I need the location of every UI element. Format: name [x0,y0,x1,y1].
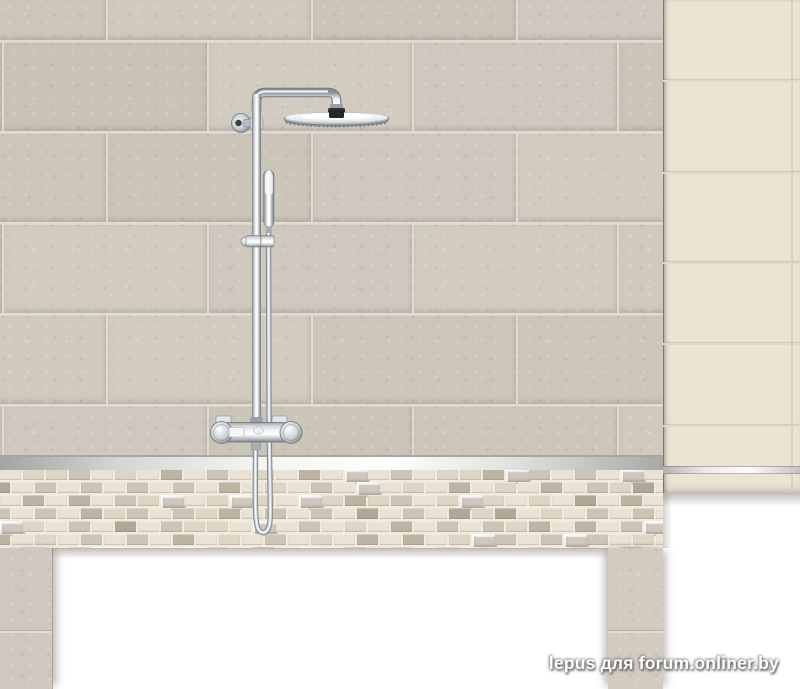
mosaic-tile [541,482,562,493]
wall-tile [0,42,2,131]
mosaic-tile [35,508,56,519]
tile-grout-line [608,631,663,633]
mosaic-tile [115,469,136,480]
mosaic-tile [552,469,573,480]
mosaic-tile [138,521,159,532]
mosaic-tile [115,521,136,532]
mosaic-tile [460,469,481,480]
mosaic-tile [633,508,654,519]
wall-tile [0,315,106,404]
mosaic-tile [138,495,159,506]
mosaic-tile [656,534,663,545]
mosaic-tile [610,534,631,545]
wall-tile [4,406,207,458]
mosaic-tile [173,508,194,519]
accent-panel-right [663,0,800,493]
mosaic-tile [656,482,663,493]
mosaic-tile [575,469,596,480]
mosaic-tile [92,521,113,532]
mosaic-tile [150,508,171,519]
wall-tile [108,0,311,40]
wall-tile [414,224,617,313]
mosaic-tile [598,469,619,480]
mosaic-tile [644,469,663,480]
mosaic-tile [104,482,125,493]
accent-panel-grout-line [663,262,800,264]
wall-tile [414,42,617,131]
mosaic-tile [483,495,504,506]
wall-tile [0,133,106,222]
right-cutout-side-shadow [663,494,672,548]
mosaic-tile [127,482,148,493]
mosaic-tile [46,521,67,532]
mosaic-tile [115,495,136,506]
mosaic-tile [69,495,90,506]
mosaic-tile [173,482,194,493]
metal-trim-strip-right [663,466,800,474]
accent-panel-grout-vertical [791,0,793,493]
mosaic-tile [426,482,447,493]
bathroom-scene: lepus для forum.onliner.by [0,0,800,689]
mosaic-tile [23,521,44,532]
mosaic-tile [81,534,102,545]
hand-shower-icon [264,170,275,233]
wall-tile [518,0,663,40]
mosaic-tile [541,508,562,519]
wall-tile [518,315,663,404]
mosaic-tile [564,534,589,548]
mosaic-tile [483,469,504,480]
mosaic-tile [610,508,631,519]
mosaic-tile [23,495,44,506]
accent-panel-grout-line [663,425,800,427]
mosaic-tile [58,482,79,493]
mosaic-tile [12,508,33,519]
mosaic-tile [621,521,642,532]
wall-tile [619,42,663,131]
mosaic-tile [506,495,527,506]
slider-clamp-icon [241,236,274,248]
mosaic-tile [552,495,573,506]
mosaic-tile [104,508,125,519]
wall-tile [0,0,106,40]
accent-panel-grout-line [663,172,800,174]
mosaic-tile [564,482,585,493]
wall-tile [0,224,2,313]
mosaic-tile [437,469,458,480]
mosaic-tile [58,534,79,545]
shower-system [200,78,420,548]
thermostat-valve-icon [211,416,303,450]
wall-tile [619,406,663,458]
mosaic-tile [518,534,539,545]
mosaic-tile [529,469,550,480]
mosaic-tile [12,534,33,545]
mosaic-tile [495,482,516,493]
wall-tile [313,0,516,40]
mosaic-tile [644,495,663,506]
mosaic-tile [12,482,33,493]
mosaic-tile [69,521,90,532]
mosaic-tile [449,508,470,519]
mosaic-tile [529,495,550,506]
mosaic-tile [472,534,497,548]
mosaic-tile [449,534,470,545]
mosaic-tile [0,469,21,480]
mosaic-tile [127,508,148,519]
mosaic-tile [472,508,493,519]
mosaic-tile [127,534,148,545]
mosaic-tile [633,534,654,545]
mosaic-tile [575,521,596,532]
mosaic-tile [426,534,447,545]
mosaic-tile [46,495,67,506]
mosaic-tile [587,508,608,519]
mosaic-tile [472,482,493,493]
mosaic-tile [35,482,56,493]
mosaic-tile [150,534,171,545]
mosaic-tile [518,508,539,519]
mosaic-tile [161,521,182,532]
mosaic-tile [0,495,21,506]
mosaic-tile [69,469,90,480]
mosaic-tile [138,469,159,480]
wall-tile [4,224,207,313]
accent-panel-grout-line [663,80,800,82]
mosaic-tile [552,521,573,532]
mosaic-tile [0,534,10,545]
mosaic-tile [104,534,125,545]
wall-tile [0,406,2,458]
accent-panel-grout-line [663,343,800,345]
mosaic-tile [587,534,608,545]
mosaic-tile [529,521,550,532]
mosaic-tile [0,508,10,519]
wall-tile [619,224,663,313]
mosaic-tile [58,508,79,519]
mosaic-tile [437,495,458,506]
mosaic-tile [610,482,631,493]
wall-tile [414,406,617,458]
mosaic-tile [35,534,56,545]
mosaic-tile [598,521,619,532]
shower-arm-icon [257,92,337,113]
mosaic-tile [173,534,194,545]
right-cutout-shadow [663,493,800,506]
mosaic-tile [92,469,113,480]
mosaic-tile [0,482,10,493]
mosaic-tile [575,495,596,506]
mosaic-tile [506,521,527,532]
mosaic-tile [23,469,44,480]
mosaic-tile [437,521,458,532]
mosaic-tile [564,508,585,519]
watermark: lepus для forum.onliner.by [549,653,779,674]
mosaic-tile [483,521,504,532]
mosaic-tile [495,508,516,519]
rain-shower-head-icon [284,104,389,127]
mosaic-tile [495,534,516,545]
mosaic-tile [518,482,539,493]
wall-tile [518,133,663,222]
tile-column-left [0,548,53,689]
mosaic-tile [587,482,608,493]
mosaic-tile [46,469,67,480]
tile-grout-line [0,631,52,633]
mosaic-tile [541,534,562,545]
mosaic-tile [656,508,663,519]
wall-tile [4,42,207,131]
mosaic-tile [633,482,654,493]
mosaic-tile [598,495,619,506]
mosaic-tile [426,508,447,519]
mosaic-tile [81,508,102,519]
bathtub-cutout-shadow [52,548,608,559]
mosaic-tile [150,482,171,493]
mosaic-tile [81,482,102,493]
mosaic-tile [161,469,182,480]
mosaic-tile [92,495,113,506]
shower-pipe-icon [252,94,261,423]
mosaic-tile [460,521,481,532]
mosaic-tile [449,482,470,493]
mosaic-tile [621,495,642,506]
